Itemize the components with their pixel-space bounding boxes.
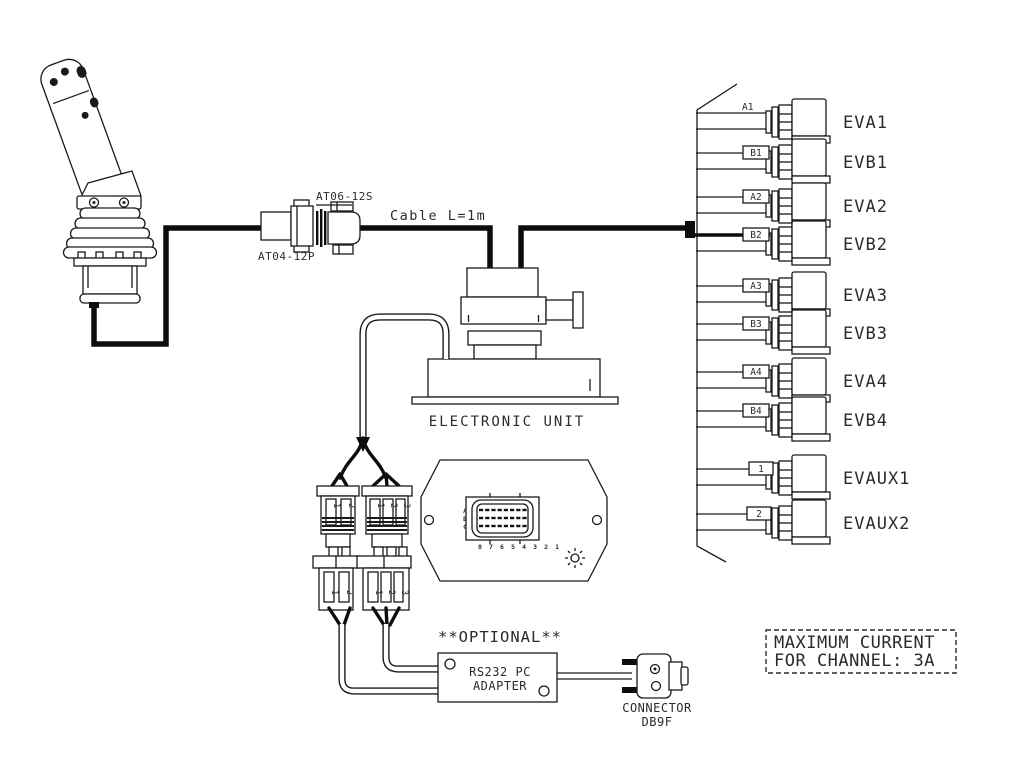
cable-length-label: Cable L=1m (390, 208, 486, 224)
db9-label-line2: DB9F (642, 715, 673, 729)
at04-label: AT04-12P (258, 250, 315, 263)
joystick-collar (77, 196, 141, 209)
electronic-unit-label: ELECTRONIC UNIT (429, 414, 585, 430)
connector-at04-12p (261, 200, 313, 252)
max-current-line1: MAXIMUM CURRENT (774, 633, 935, 653)
pin-row-label: C (463, 523, 467, 531)
valve-row-eva4: A4 EVA4 (696, 358, 888, 402)
connector-at06-12s (316, 202, 360, 254)
valve-row-evb2: B2 EVB2 (695, 221, 888, 265)
pin-label: 3 (399, 590, 409, 595)
joystick-bellows (64, 208, 157, 258)
pin-col-labels: 8 7 6 5 4 3 2 1 (478, 543, 561, 551)
mounting-hole-icon (593, 516, 602, 525)
max-current-note: MAXIMUM CURRENT FOR CHANNEL: 3A (766, 630, 956, 673)
channel-tag: A4 (750, 367, 762, 378)
channel-tag: 2 (756, 509, 762, 520)
valve-row-evb1: B1 EVB1 (696, 139, 888, 183)
valve-row-eva2: A2 EVA2 (696, 183, 888, 227)
joystick-cable (94, 221, 695, 344)
controller-plate: A B C 8 7 6 5 4 3 2 1 (421, 460, 607, 581)
valve-name: EVB4 (843, 411, 888, 431)
valve-harness-bracket (697, 84, 737, 562)
pin-label: 1 (375, 503, 385, 508)
pin-row-label: B (463, 515, 467, 523)
pin-row-label: A (463, 507, 467, 515)
valve-name: EVA4 (843, 372, 888, 392)
rs232-adapter: RS232 PC ADAPTER (438, 653, 557, 702)
mating-socket-3pin: 1 2 3 (357, 556, 411, 625)
valve-name: EVA3 (843, 286, 888, 306)
channel-tag: B2 (750, 230, 761, 241)
valve-name: EVB1 (843, 153, 888, 173)
joystick-base (80, 266, 140, 308)
screw-hole-icon (539, 686, 549, 696)
pin-label: 1 (329, 590, 339, 595)
max-current-line2: FOR CHANNEL: 3A (774, 651, 935, 671)
wiring-diagram: AT04-12P AT06-12S Cable L=1m ELECTRONIC … (0, 0, 1024, 768)
adapter-cables (342, 624, 440, 691)
db9-label-line1: CONNECTOR (622, 701, 692, 715)
adapter-label-line1: RS232 PC (469, 665, 531, 679)
valve-row-eva3: A3 EVA3 (696, 272, 888, 316)
mating-socket-2pin: 1 2 (313, 556, 359, 625)
valve-name: EVA2 (843, 197, 888, 217)
valve-row-eva1: A1 EVA1 (696, 99, 888, 143)
pin-label: 1 (373, 590, 383, 595)
optional-label: **OPTIONAL** (438, 628, 562, 646)
channel-tag: 1 (758, 464, 764, 475)
splitter-plug-2pin: 1 2 (317, 486, 359, 558)
valve-name: EVAUX2 (843, 514, 910, 534)
valve-row-evaux1: 1 EVAUX1 (696, 455, 910, 499)
channel-tag: B1 (750, 148, 762, 159)
at06-label: AT06-12S (316, 190, 373, 203)
mounting-hole-icon (425, 516, 434, 525)
valve-name: EVB3 (843, 324, 888, 344)
pin-label: 3 (401, 503, 411, 508)
valve-row-evb3: B3 EVB3 (696, 310, 888, 354)
screw-hole-icon (445, 659, 455, 669)
pin-label: 2 (388, 503, 398, 508)
channel-tag: A2 (750, 192, 761, 203)
channel-tag: B4 (750, 406, 762, 417)
valve-row-evb4: B4 EVB4 (696, 397, 888, 441)
pin-label: 2 (344, 590, 354, 595)
adapter-label-line2: ADAPTER (473, 679, 527, 693)
splitter-plug-3pin: 1 2 3 (362, 486, 412, 558)
channel-tag: B3 (750, 319, 761, 330)
valve-name: EVA1 (843, 113, 888, 133)
diagram-canvas: AT04-12P AT06-12S Cable L=1m ELECTRONIC … (0, 0, 1024, 768)
joystick (37, 54, 157, 308)
db9f-connector (622, 654, 688, 698)
valve-name: EVAUX1 (843, 469, 910, 489)
db9-cable (557, 673, 632, 679)
pin-label: 1 (331, 503, 341, 508)
cable-junction (685, 221, 695, 238)
channel-tag: A1 (742, 102, 754, 113)
pin-label: 2 (386, 590, 396, 595)
channel-tag: A3 (750, 281, 761, 292)
pin-label: 2 (346, 503, 356, 508)
valve-name: EVB2 (843, 235, 888, 255)
valve-row-evaux2: 2 EVAUX2 (696, 500, 910, 544)
